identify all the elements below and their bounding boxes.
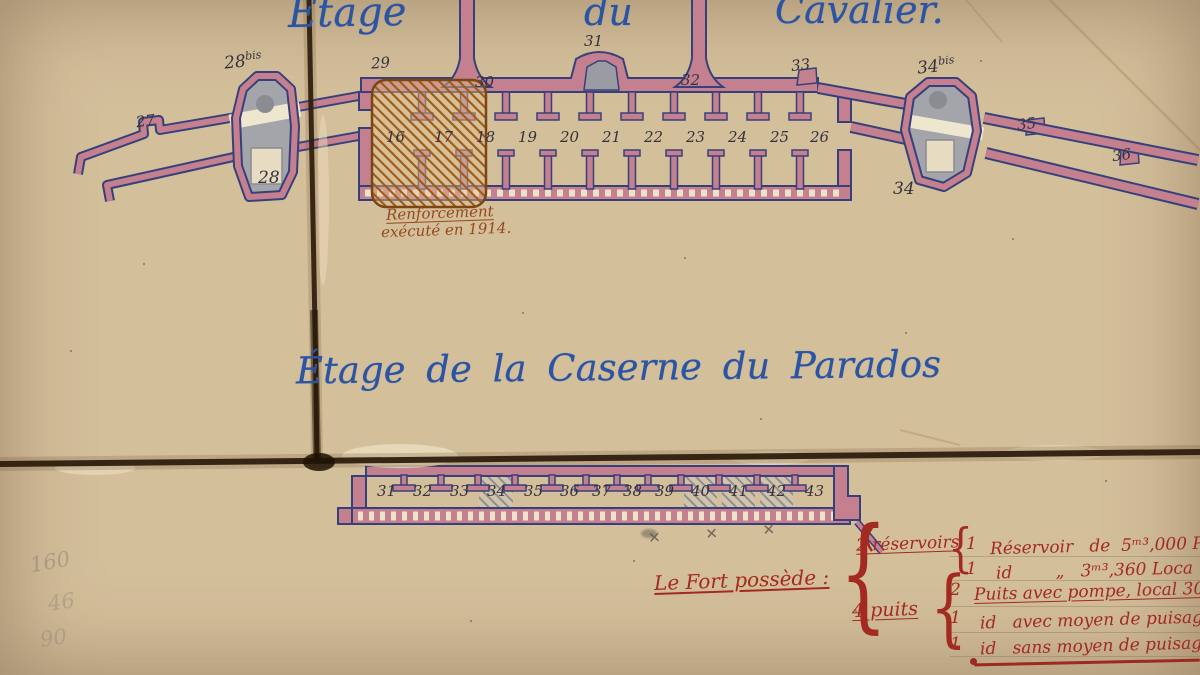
parados-room-33: 33 — [450, 482, 469, 500]
parados-room-41: 41 — [729, 482, 748, 500]
puits-row2-qty: 1 — [950, 608, 961, 628]
room-label-27: 27 — [135, 111, 156, 131]
room-label-34bis: 34bis — [916, 53, 956, 78]
casemate-room-25: 25 — [770, 128, 789, 146]
room-label-29: 29 — [370, 53, 390, 72]
parados-room-42: 42 — [767, 482, 786, 500]
casemate-room-19: 19 — [518, 128, 537, 146]
title-cavalier: Cavalier. — [775, 0, 944, 32]
fortification-plan-photo: { "titles": { "etage": "Étage", "du": "d… — [0, 0, 1200, 675]
room-label-36: 36 — [1111, 145, 1132, 165]
parados-room-36: 36 — [560, 482, 579, 500]
cavalier-plan — [78, 0, 1198, 207]
arch-31 — [584, 61, 619, 90]
puits-row1-qty: 2 — [950, 580, 961, 600]
reservoirs-label: 2 réservoirs — [856, 532, 960, 556]
parados-room-40: 40 — [691, 482, 710, 500]
room-label-31: 31 — [584, 32, 603, 50]
room-label-34: 34 — [893, 179, 915, 199]
casemate-room-23: 23 — [686, 128, 705, 146]
casemate-room-16: 16 — [386, 128, 405, 146]
parados-room-31: 31 — [377, 482, 396, 500]
parados-room-39: 39 — [655, 482, 674, 500]
red-rule-dot — [970, 658, 977, 665]
pencil-smudge — [641, 529, 657, 538]
room-label-35: 35 — [1016, 114, 1037, 134]
room-label-34bis-num: 34 — [916, 56, 940, 78]
room-label-28bis-sup: bis — [244, 48, 261, 63]
parados-room-37: 37 — [592, 482, 611, 500]
room-label-33: 33 — [790, 55, 811, 75]
parados-room-32: 32 — [413, 482, 432, 500]
casemate-room-20: 20 — [560, 128, 579, 146]
parados-room-34: 34 — [487, 482, 506, 500]
curly-brace-puits: { — [930, 570, 967, 646]
room-label-28bis-num: 28 — [223, 51, 247, 73]
casemate-room-18: 18 — [476, 128, 495, 146]
res-row1-qty: 1 — [966, 534, 977, 554]
pencil-scribble-3: 90 — [38, 624, 68, 651]
parados-plan — [338, 466, 882, 552]
puits-label: 4 puits — [852, 598, 919, 622]
pencil-scribble-2: 46 — [46, 588, 76, 615]
room-label-32: 32 — [681, 71, 700, 89]
parados-room-43: 43 — [805, 482, 824, 500]
ruled-guide-line — [950, 606, 1200, 607]
room-label-34bis-sup: bis — [937, 53, 954, 68]
casemate-room-21: 21 — [602, 128, 621, 146]
caponier-34 — [903, 82, 983, 187]
title-du: du — [584, 0, 633, 34]
casemate-room-26: 26 — [810, 128, 829, 146]
casemate-room-22: 22 — [644, 128, 663, 146]
puits-row3-qty: 1 — [950, 634, 961, 654]
parados-room-35: 35 — [524, 482, 543, 500]
room-label-30: 30 — [475, 73, 494, 91]
title-etage: Étage — [288, 0, 407, 37]
parados-room-38: 38 — [623, 482, 642, 500]
title-parados: Étage de la Caserne du Parados — [296, 343, 941, 393]
room-label-28bis: 28bis — [223, 48, 263, 73]
casemate-room-24: 24 — [728, 128, 747, 146]
res-row2-qty: 1 — [966, 559, 977, 579]
casemate-room-17: 17 — [434, 128, 453, 146]
room-label-28: 28 — [258, 168, 280, 188]
